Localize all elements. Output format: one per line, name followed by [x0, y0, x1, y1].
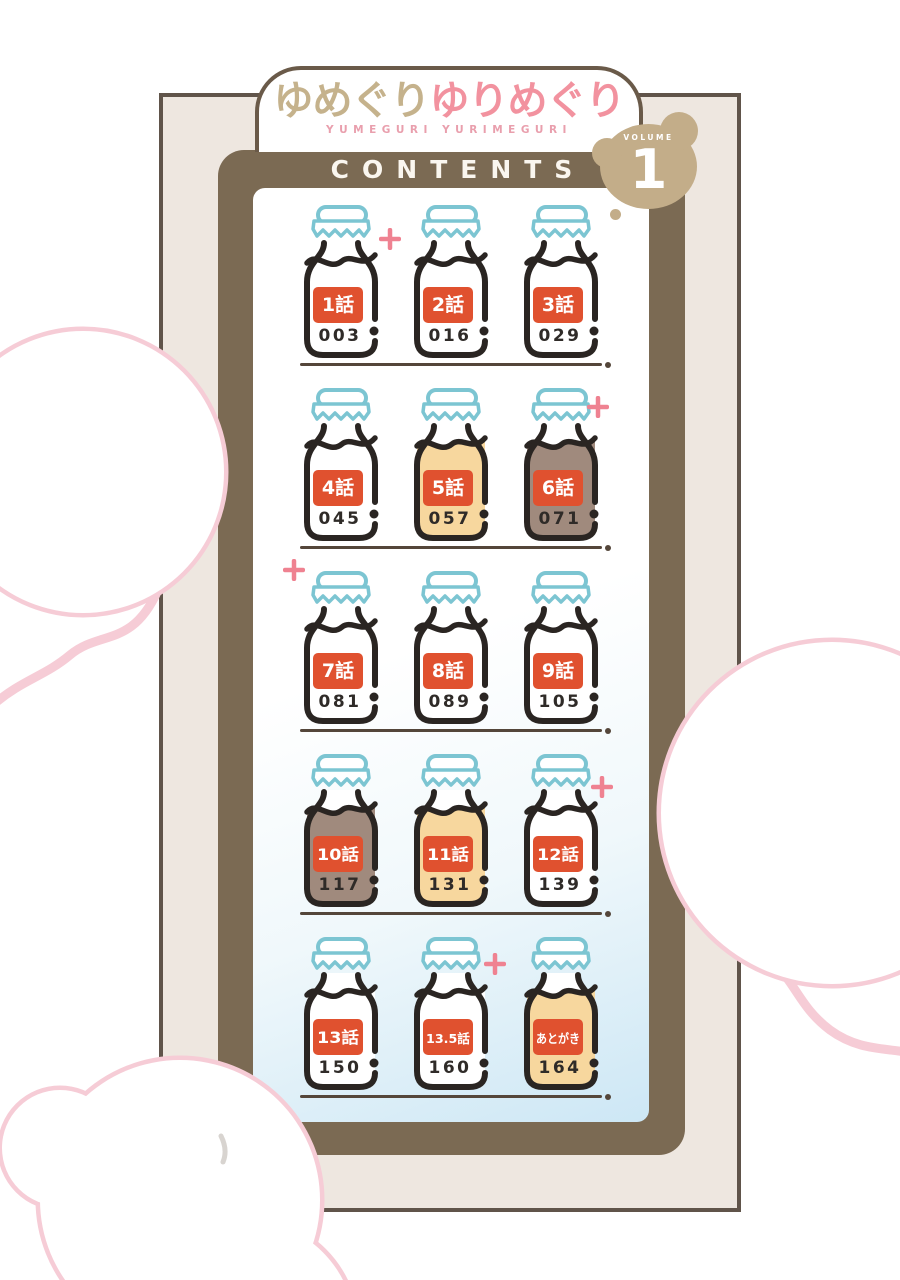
chapter-page-number: 117 [319, 875, 362, 895]
bottle-outline-dot [590, 327, 599, 336]
bottle-outline-dot [480, 693, 489, 702]
chapter-label: 1話 [322, 293, 354, 316]
chapter-page-number: 016 [429, 326, 472, 346]
bottle-cap-skirt-icon [533, 404, 589, 419]
chapter-grid: 1話 003 2話 016 3話 029 [253, 188, 649, 1098]
chapter-label: 2話 [432, 293, 464, 316]
milk-bottle: 7話 081 [303, 571, 379, 727]
chapter-label: 13.5話 [426, 1031, 471, 1046]
milk-bottle: 9話 105 [523, 571, 599, 727]
chapter-page-number: 131 [429, 875, 472, 895]
bottle-outline-dot [370, 510, 379, 519]
bottle-outline-dot [370, 693, 379, 702]
chapter-page-number: 003 [319, 326, 362, 346]
milk-bottle: あとがき 164 [523, 937, 599, 1093]
bottle-outline-dot [480, 327, 489, 336]
contents-panel: CONTENTS 1話 003 2話 016 [218, 150, 685, 1155]
shelf-line [300, 729, 602, 732]
chapter-label: 8話 [432, 659, 464, 682]
chapter-page-number: 057 [429, 509, 472, 529]
chapter-label: 12話 [537, 845, 579, 864]
chapter-page-number: 139 [539, 875, 582, 895]
chapter-page-number: 105 [539, 692, 582, 712]
bottle-outline-dot [370, 1059, 379, 1068]
bottle-cap-skirt-icon [533, 587, 589, 602]
chapter-page-number: 089 [429, 692, 472, 712]
bottle-outline-dot [590, 1059, 599, 1068]
milk-bottle: 1話 003 [303, 205, 379, 361]
milk-bottle: 10話 117 [303, 754, 379, 910]
sparkle-icon [283, 559, 305, 581]
chapter-page-number: 164 [539, 1058, 582, 1078]
series-logo: ゆめぐりゆりめぐり [259, 79, 639, 123]
shelf-line [300, 363, 602, 366]
milk-bottle: 2話 016 [413, 205, 489, 361]
chapter-label: 7話 [322, 659, 354, 682]
volume-number: 1 [630, 142, 668, 199]
logo-text-yurimeguri: ゆりめぐり [430, 78, 625, 124]
bottle-outline-dot [590, 876, 599, 885]
sparkle-icon [484, 953, 506, 975]
chapter-row: 7話 081 8話 089 9話 105 [253, 571, 649, 727]
sparkle-icon [587, 396, 609, 418]
badge-cloud-dot [610, 209, 621, 220]
shelf-line [300, 546, 602, 549]
bottle-cap-skirt-icon [423, 770, 479, 785]
chapter-row: 1話 003 2話 016 3話 029 [253, 205, 649, 361]
bottle-cap-skirt-icon [313, 404, 369, 419]
chapter-page-number: 071 [539, 509, 582, 529]
milk-bottle: 8話 089 [413, 571, 489, 727]
bottle-outline-dot [480, 1059, 489, 1068]
milk-bottle: 13話 150 [303, 937, 379, 1093]
chapter-page-number: 160 [429, 1058, 472, 1078]
series-logo-romaji: YUMEGURI YURIMEGURI [259, 124, 639, 136]
bottle-cap-skirt-icon [533, 221, 589, 236]
milk-bottle: 11話 131 [413, 754, 489, 910]
chapter-page-number: 150 [319, 1058, 362, 1078]
chapter-page-number: 029 [539, 326, 582, 346]
chapter-page-number: 045 [319, 509, 362, 529]
chapter-label: あとがき [536, 1031, 580, 1046]
chapter-label: 5話 [432, 476, 464, 499]
milk-bottle: 13.5話 160 [413, 937, 489, 1093]
bottle-cap-skirt-icon [423, 221, 479, 236]
shelf-line [300, 1095, 602, 1098]
chapter-label: 3話 [542, 293, 574, 316]
milk-bottle: 5話 057 [413, 388, 489, 544]
chapter-page-number: 081 [319, 692, 362, 712]
milk-bottle: 3話 029 [523, 205, 599, 361]
milk-bottle: 4話 045 [303, 388, 379, 544]
chapter-label: 13話 [317, 1028, 359, 1047]
chapter-row: 13話 150 13.5話 160 あとがき 164 [253, 937, 649, 1093]
bottle-outline-dot [480, 510, 489, 519]
bottle-cap-skirt-icon [423, 587, 479, 602]
bottle-cap-skirt-icon [313, 770, 369, 785]
bottle-outline-dot [370, 327, 379, 336]
bottle-cap-skirt-icon [423, 953, 479, 968]
bottle-outline-dot [590, 693, 599, 702]
chapter-label: 11話 [427, 845, 469, 864]
toc-page: CONTENTS 1話 003 2話 016 [0, 0, 900, 1280]
chapter-label: 9話 [542, 659, 574, 682]
title-card: ゆめぐりゆりめぐり YUMEGURI YURIMEGURI [255, 66, 643, 152]
chapter-grid-area: 1話 003 2話 016 3話 029 [253, 188, 649, 1122]
bottle-cap-skirt-icon [533, 953, 589, 968]
chapter-label: 4話 [322, 476, 354, 499]
bottle-outline-dot [370, 876, 379, 885]
bottle-cap-skirt-icon [313, 953, 369, 968]
bottle-cap-skirt-icon [313, 221, 369, 236]
milk-bottle: 12話 139 [523, 754, 599, 910]
logo-text-yumeguri: ゆめぐり [274, 78, 430, 124]
bottle-outline-dot [590, 510, 599, 519]
chapter-label: 6話 [542, 476, 574, 499]
shelf-line [300, 912, 602, 915]
bottle-outline-dot [480, 876, 489, 885]
sparkle-icon [379, 228, 401, 250]
sparkle-icon [591, 776, 613, 798]
chapter-label: 10話 [317, 845, 359, 864]
bottle-cap-skirt-icon [423, 404, 479, 419]
bottle-cap-skirt-icon [313, 587, 369, 602]
bottle-cap-skirt-icon [533, 770, 589, 785]
chapter-row: 10話 117 11話 131 12話 139 [253, 754, 649, 910]
